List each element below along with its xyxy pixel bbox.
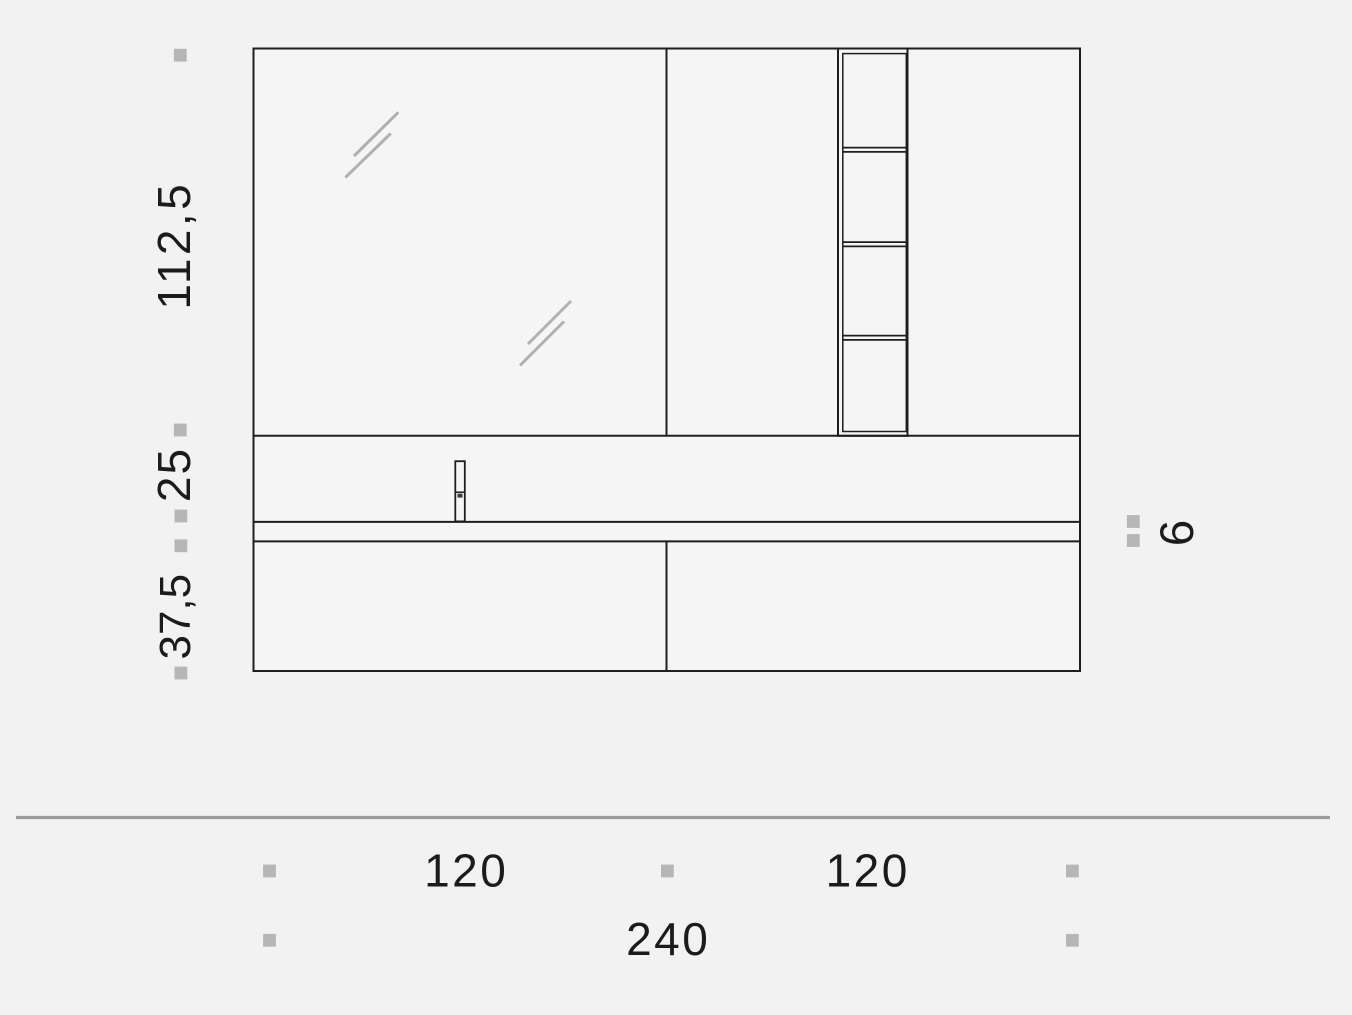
- svg-text:120: 120: [826, 845, 910, 897]
- svg-text:25: 25: [148, 447, 200, 502]
- svg-text:240: 240: [626, 913, 710, 965]
- svg-text:112,5: 112,5: [148, 181, 200, 310]
- svg-text:6: 6: [1151, 520, 1204, 546]
- svg-text:120: 120: [424, 845, 508, 897]
- svg-text:37,5: 37,5: [151, 574, 200, 660]
